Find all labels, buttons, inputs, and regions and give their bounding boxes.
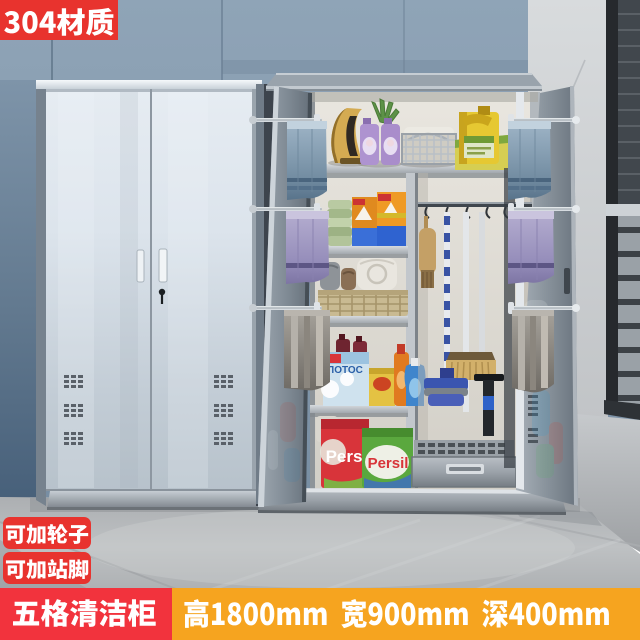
svg-text:Persil: Persil <box>368 455 409 472</box>
svg-text:ЛОТОС: ЛОТОС <box>327 365 363 376</box>
svg-text:Pers: Pers <box>326 447 363 466</box>
